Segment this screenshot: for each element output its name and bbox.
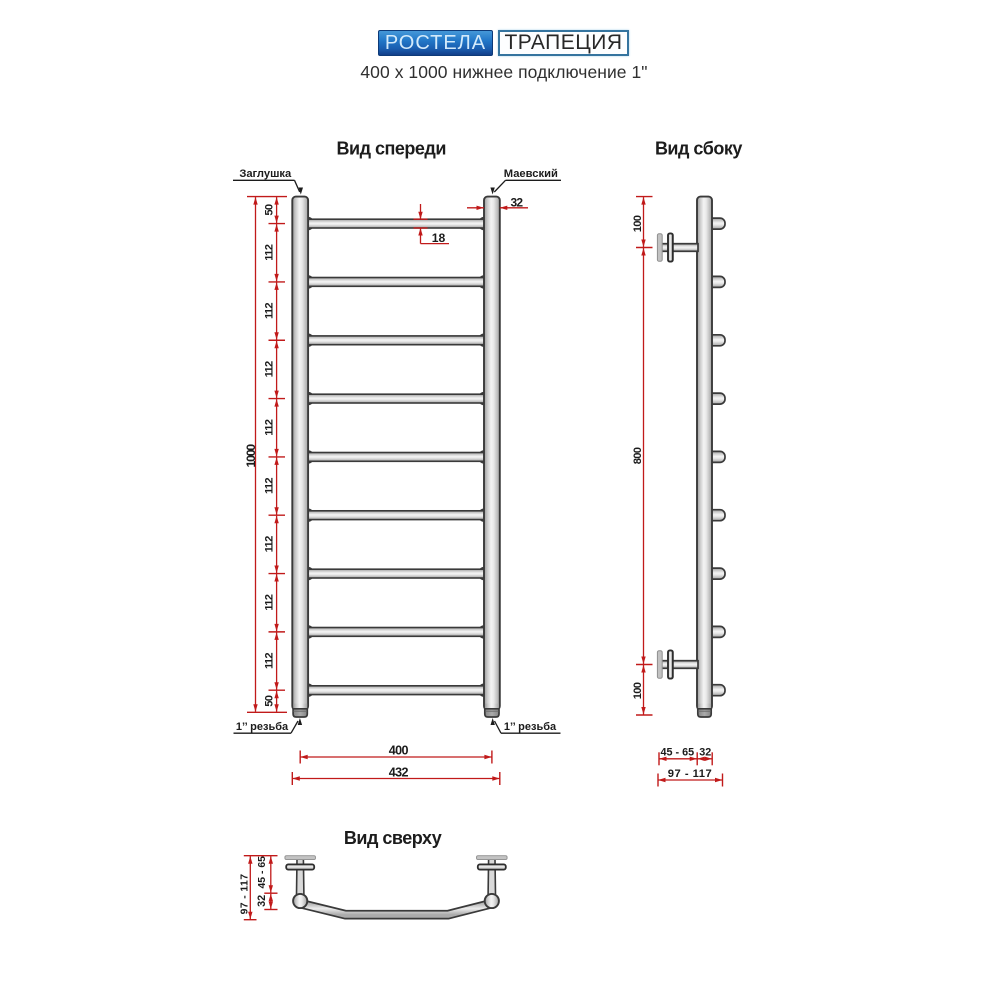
svg-text:400: 400 (389, 744, 409, 758)
svg-text:112: 112 (264, 478, 276, 494)
svg-text:45 - 65: 45 - 65 (660, 747, 694, 759)
svg-text:50: 50 (264, 204, 276, 216)
svg-text:Заглушка: Заглушка (239, 168, 292, 180)
svg-text:32: 32 (256, 895, 268, 907)
svg-text:112: 112 (264, 594, 276, 610)
svg-text:112: 112 (264, 361, 276, 377)
svg-text:112: 112 (264, 244, 276, 260)
svg-text:18: 18 (432, 231, 446, 245)
svg-text:Маевский: Маевский (504, 168, 558, 180)
svg-text:50: 50 (264, 695, 276, 707)
svg-text:1000: 1000 (244, 444, 258, 468)
svg-text:1’’ резьба: 1’’ резьба (504, 721, 557, 733)
svg-text:432: 432 (389, 765, 409, 779)
svg-text:112: 112 (264, 303, 276, 319)
svg-text:112: 112 (264, 419, 276, 435)
svg-text:97 - 117: 97 - 117 (668, 768, 712, 780)
svg-text:Вид спереди: Вид спереди (337, 138, 446, 158)
svg-text:Вид сверху: Вид сверху (344, 828, 442, 848)
svg-text:32: 32 (699, 747, 711, 759)
svg-text:45 - 65: 45 - 65 (257, 856, 268, 889)
svg-text:800: 800 (632, 447, 644, 464)
svg-text:100: 100 (632, 215, 644, 232)
svg-text:112: 112 (264, 653, 276, 669)
svg-text:Вид сбоку: Вид сбоку (655, 138, 742, 158)
svg-text:32: 32 (511, 196, 524, 210)
svg-text:112: 112 (264, 536, 276, 552)
svg-text:100: 100 (632, 682, 644, 699)
svg-text:97 - 117: 97 - 117 (240, 874, 251, 915)
svg-text:1’’ резьба: 1’’ резьба (236, 721, 289, 733)
